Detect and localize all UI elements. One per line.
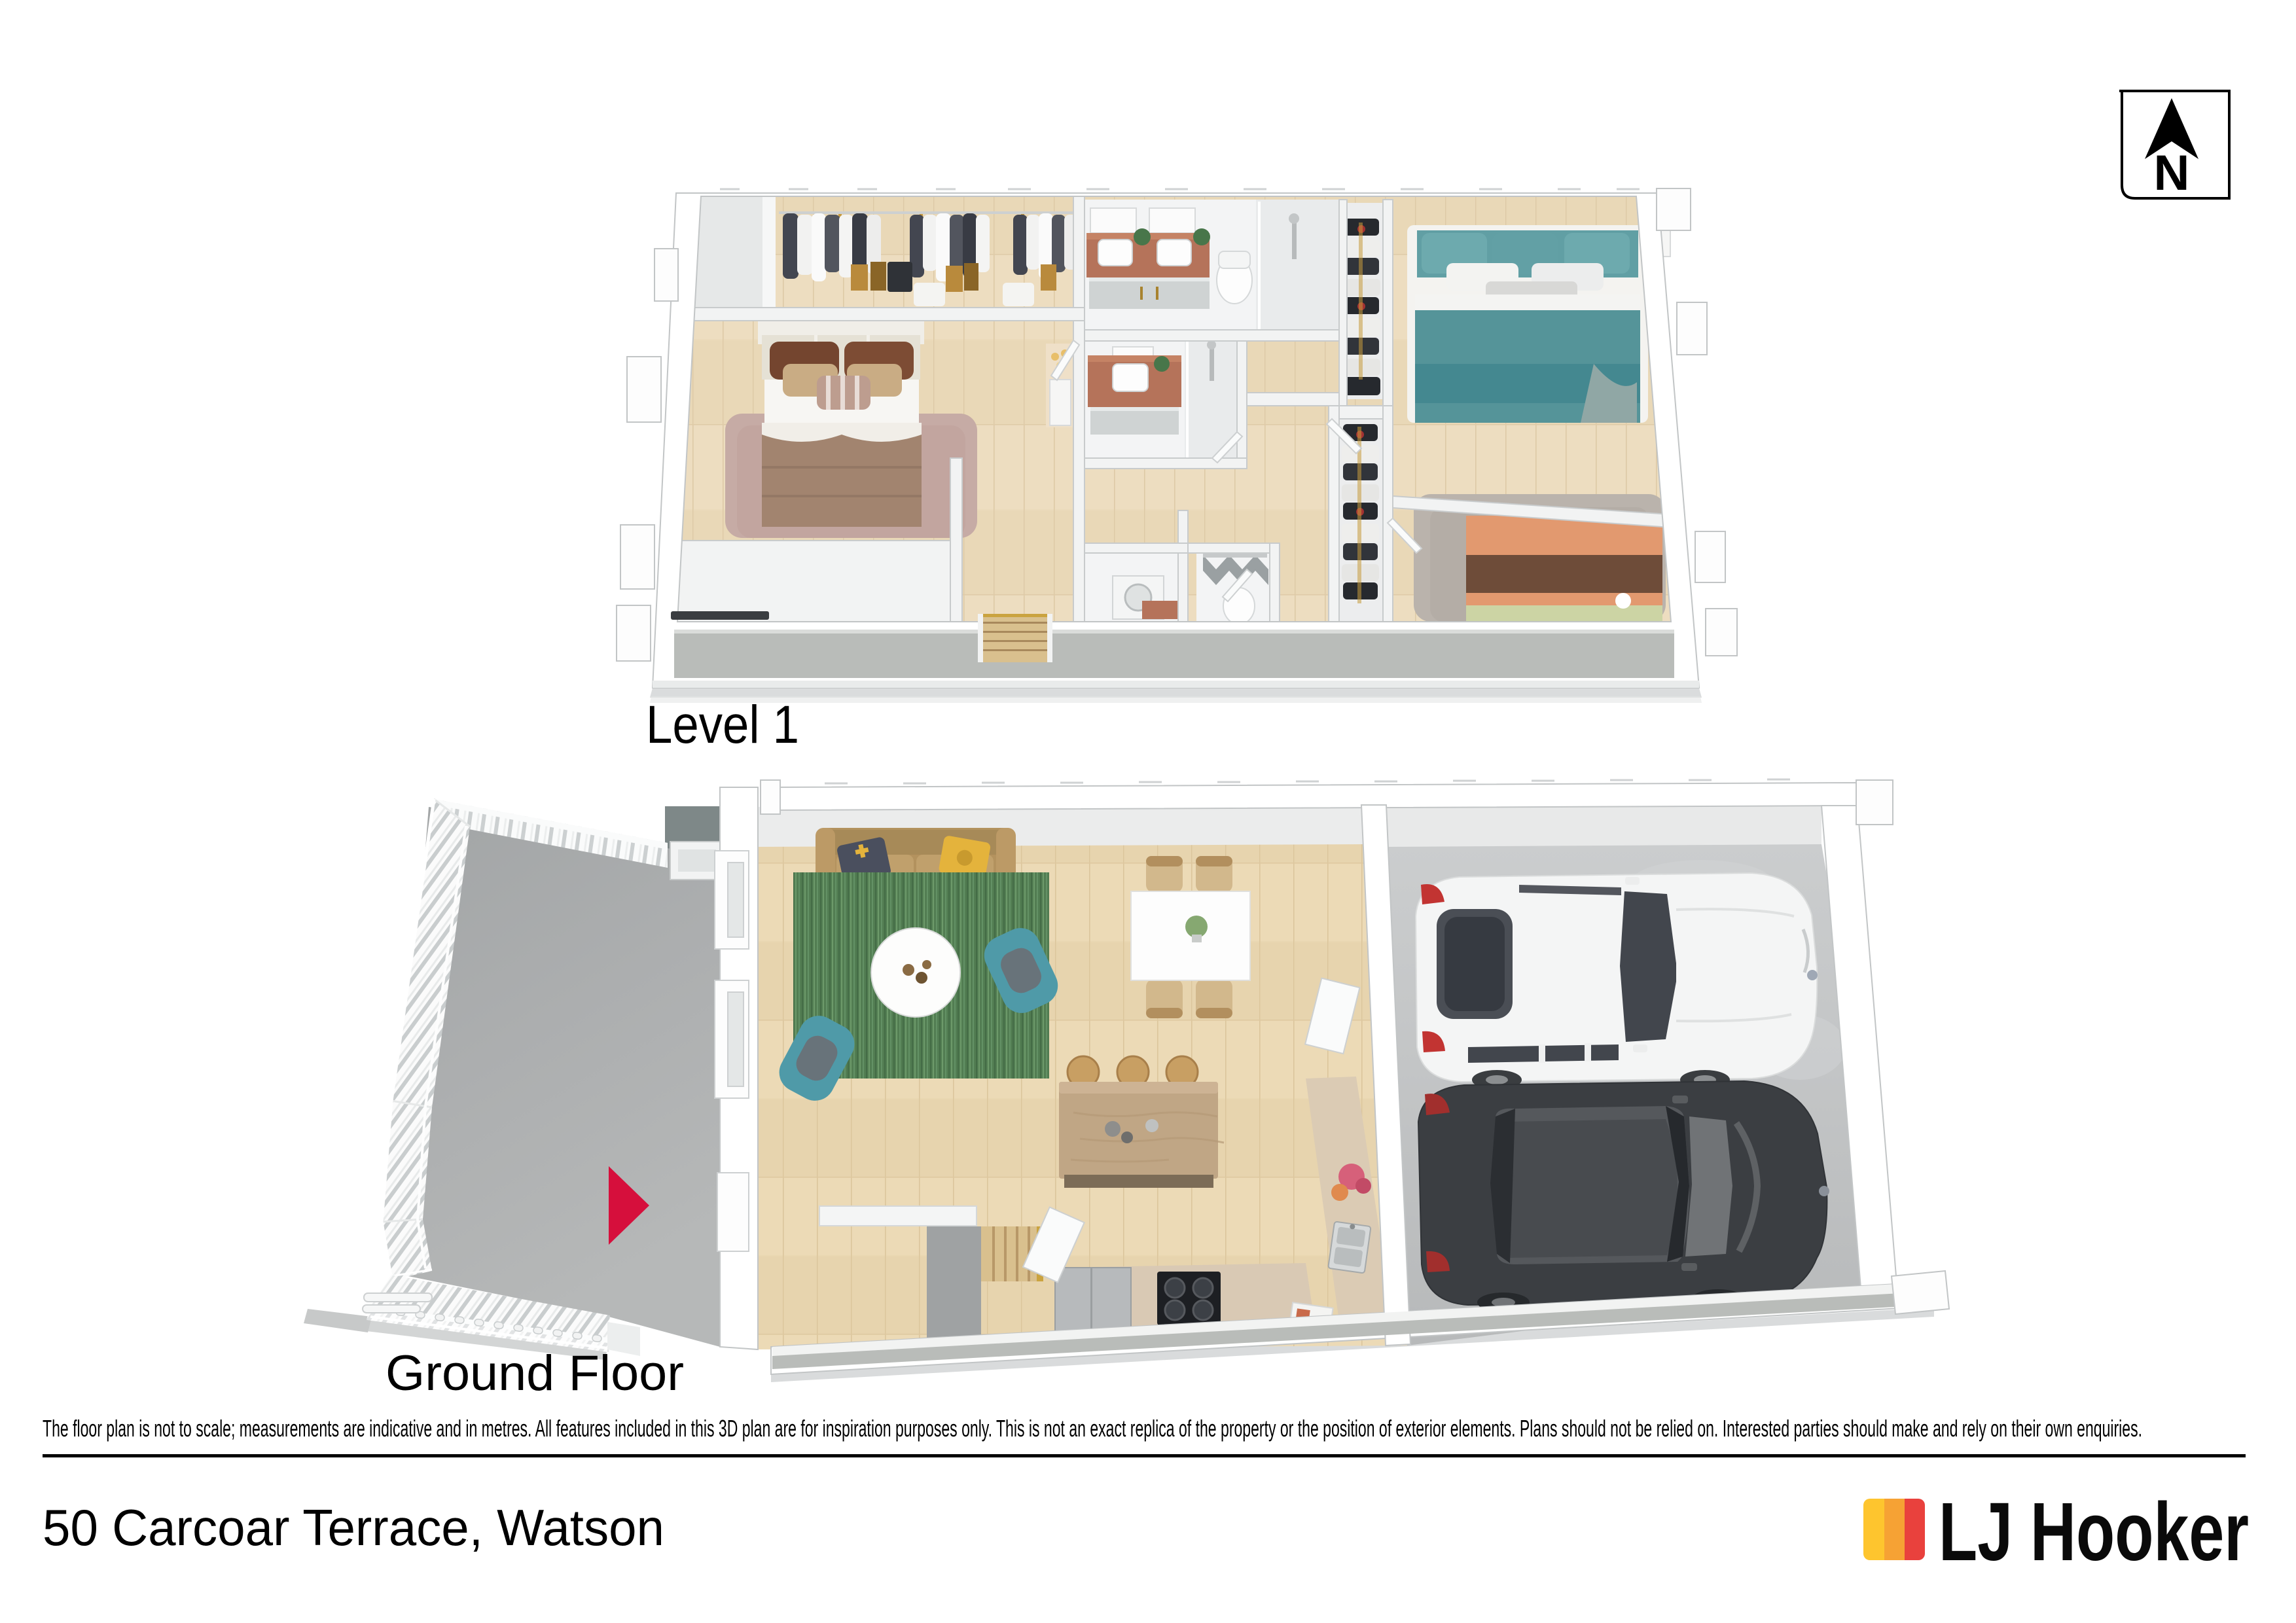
svg-text:50 Carcoar Terrace, Watson: 50 Carcoar Terrace, Watson	[43, 1499, 664, 1556]
svg-text:The floor plan is not to scale: The floor plan is not to scale; measurem…	[43, 1415, 2142, 1442]
svg-text:Level 1: Level 1	[646, 695, 799, 755]
svg-text:LJ Hooker: LJ Hooker	[1939, 1486, 2249, 1578]
svg-text:Ground Floor: Ground Floor	[386, 1346, 684, 1401]
svg-text:N: N	[2154, 145, 2190, 201]
